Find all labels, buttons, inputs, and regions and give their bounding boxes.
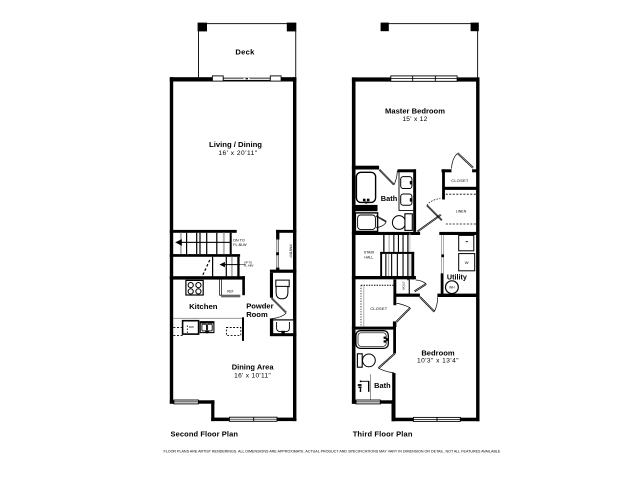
svg-text:10'3" x 13'4": 10'3" x 13'4" [417, 358, 459, 365]
svg-text:Deck: Deck [235, 48, 255, 57]
svg-text:Living / Dining: Living / Dining [209, 140, 262, 149]
svg-text:Master Bedroom: Master Bedroom [385, 106, 445, 115]
svg-text:Kitchen: Kitchen [189, 302, 218, 311]
svg-text:Bath: Bath [374, 381, 391, 390]
svg-text:Bath: Bath [381, 194, 398, 203]
svg-text:Dining Area: Dining Area [232, 363, 275, 372]
svg-text:Third Floor Plan: Third Floor Plan [353, 429, 413, 438]
svg-text:STOR: STOR [401, 281, 405, 290]
svg-text:FL.ABV: FL.ABV [244, 264, 254, 268]
svg-text:15' x 12: 15' x 12 [402, 116, 427, 123]
svg-text:Utility: Utility [447, 272, 467, 281]
svg-text:LINEN: LINEN [456, 210, 467, 214]
svg-text:16' x 20'11": 16' x 20'11" [218, 150, 257, 157]
svg-text:HALL: HALL [364, 255, 373, 259]
svg-text:Second Floor Plan: Second Floor Plan [171, 430, 239, 439]
svg-text:Bedroom: Bedroom [421, 348, 455, 357]
svg-text:WH: WH [449, 286, 455, 290]
svg-text:CLOSET: CLOSET [370, 306, 388, 311]
svg-text:STAIR: STAIR [364, 251, 375, 255]
svg-text:FL.BLW: FL.BLW [233, 243, 247, 247]
svg-text:DW: DW [189, 325, 194, 329]
svg-text:PANTRY: PANTRY [289, 245, 293, 259]
svg-text:16' x 10'11": 16' x 10'11" [234, 373, 271, 380]
svg-text:REF: REF [227, 289, 233, 293]
svg-text:FLOOR PLANS ARE ARTIST RENDERI: FLOOR PLANS ARE ARTIST RENDERINGS. ALL D… [164, 450, 501, 454]
svg-text:Room: Room [246, 310, 268, 319]
svg-text:CLOSET: CLOSET [451, 178, 469, 183]
svg-text:W: W [465, 260, 469, 265]
